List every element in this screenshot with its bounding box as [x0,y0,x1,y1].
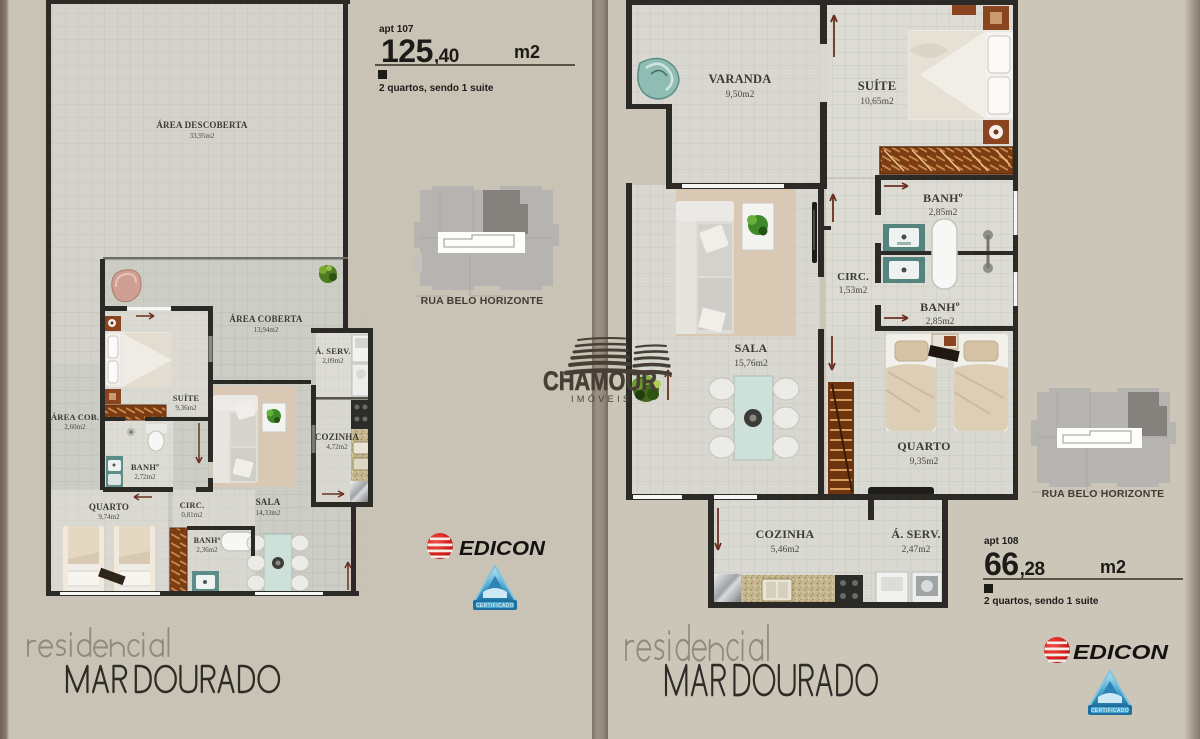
svg-text:33,95m2: 33,95m2 [190,132,215,140]
svg-text:CIRC.: CIRC. [837,271,869,283]
svg-text:5,46m2: 5,46m2 [771,545,800,555]
svg-text:2 quartos, sendo 1 suite: 2 quartos, sendo 1 suite [984,596,1099,607]
svg-text:m2: m2 [514,42,540,62]
svg-text:2,85m2: 2,85m2 [929,208,958,218]
svg-text:CHAMOUR: CHAMOUR [543,366,657,396]
svg-text:RUA BELO HORIZONTE: RUA BELO HORIZONTE [421,295,544,307]
svg-text:QUARTO: QUARTO [89,502,129,512]
svg-text:2,47m2: 2,47m2 [902,545,931,555]
svg-text:9,36m2: 9,36m2 [175,404,197,412]
svg-text:VARANDA: VARANDA [709,72,772,86]
svg-text:RUA BELO HORIZONTE: RUA BELO HORIZONTE [1042,488,1165,500]
svg-text:ÁREA COBERTA: ÁREA COBERTA [229,314,302,324]
svg-text:2,60m2: 2,60m2 [64,423,86,431]
svg-text:CERTIFICADO: CERTIFICADO [1091,708,1129,714]
svg-text:2,85m2: 2,85m2 [926,317,955,327]
svg-text:BANHº: BANHº [194,536,221,545]
svg-text:BANHº: BANHº [131,462,159,472]
svg-text:SUÍTE: SUÍTE [173,393,200,403]
svg-text:15,76m2: 15,76m2 [734,359,768,369]
svg-text:10,65m2: 10,65m2 [860,97,894,107]
svg-text:Á. SERV.: Á. SERV. [891,527,940,541]
svg-text:EDICON: EDICON [1073,642,1169,664]
svg-text:COZINHA: COZINHA [756,527,815,541]
svg-text:1,53m2: 1,53m2 [839,286,868,296]
svg-text:BANHº: BANHº [920,300,960,314]
svg-text:SUÍTE: SUÍTE [858,79,897,93]
svg-text:ÁREA DESCOBERTA: ÁREA DESCOBERTA [156,120,248,130]
svg-text:ÁREA COB.: ÁREA COB. [51,412,99,422]
svg-text:14,33m2: 14,33m2 [256,509,281,517]
svg-text:0,81m2: 0,81m2 [181,511,203,519]
svg-text:9,50m2: 9,50m2 [726,90,755,100]
svg-text:QUARTO: QUARTO [897,439,950,453]
svg-text:13,94m2: 13,94m2 [254,326,279,334]
svg-text:m2: m2 [1100,557,1126,577]
svg-text:EDICON: EDICON [459,537,546,560]
svg-text:COZINHA: COZINHA [315,432,360,442]
svg-text:2,72m2: 2,72m2 [134,473,156,481]
svg-text:2 quartos, sendo 1 suite: 2 quartos, sendo 1 suite [379,83,494,94]
svg-text:2,36m2: 2,36m2 [196,546,218,554]
svg-text:9,35m2: 9,35m2 [910,457,939,467]
svg-text:SALA: SALA [735,341,768,355]
svg-text:Á. SERV.: Á. SERV. [315,346,350,356]
svg-text:9,74m2: 9,74m2 [98,513,120,521]
svg-text:CERTIFICADO: CERTIFICADO [476,603,514,609]
svg-text:4,72m2: 4,72m2 [326,443,348,451]
svg-text:BANHº: BANHº [923,191,963,205]
svg-text:2,09m2: 2,09m2 [322,357,344,365]
svg-text:CIRC.: CIRC. [180,500,205,510]
svg-text:SALA: SALA [256,497,281,507]
